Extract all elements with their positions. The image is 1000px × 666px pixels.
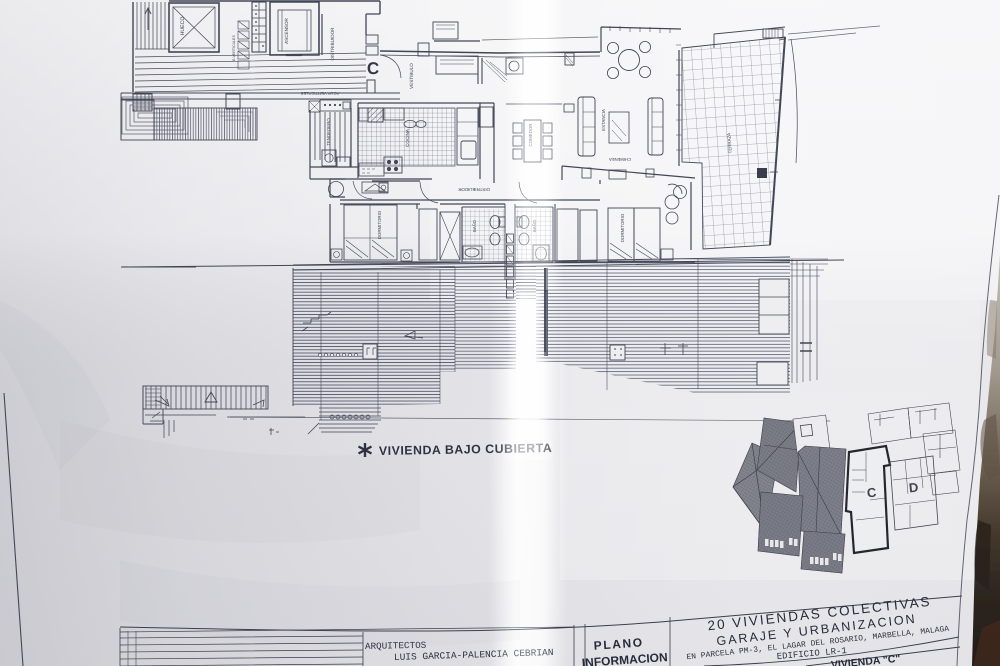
svg-text:B.VERTICALES: B.VERTICALES bbox=[232, 35, 236, 61]
svg-text:COCINA: COCINA bbox=[405, 128, 410, 147]
svg-text:CHIMENEA: CHIMENEA bbox=[609, 157, 631, 162]
svg-text:AGUA VERTICALES: AGUA VERTICALES bbox=[300, 91, 339, 96]
svg-text:DORMITORIO: DORMITORIO bbox=[377, 210, 382, 239]
svg-text:DORMITORIO: DORMITORIO bbox=[620, 213, 625, 242]
svg-text:BAÑO: BAÑO bbox=[472, 219, 477, 232]
svg-text:C: C bbox=[367, 59, 379, 78]
svg-text:DISTRIBUIDOR: DISTRIBUIDOR bbox=[458, 187, 489, 192]
svg-text:TENDEDERO: TENDEDERO bbox=[326, 118, 331, 146]
svg-text:HUECO: HUECO bbox=[180, 17, 186, 36]
svg-text:ESTANCIA: ESTANCIA bbox=[601, 109, 606, 131]
svg-text:VESTIBULO: VESTIBULO bbox=[409, 63, 414, 89]
svg-text:D: D bbox=[908, 480, 919, 496]
svg-text:DISTRIBUIDOR: DISTRIBUIDOR bbox=[330, 27, 335, 61]
svg-text:ASCENSOR: ASCENSOR bbox=[284, 17, 289, 43]
